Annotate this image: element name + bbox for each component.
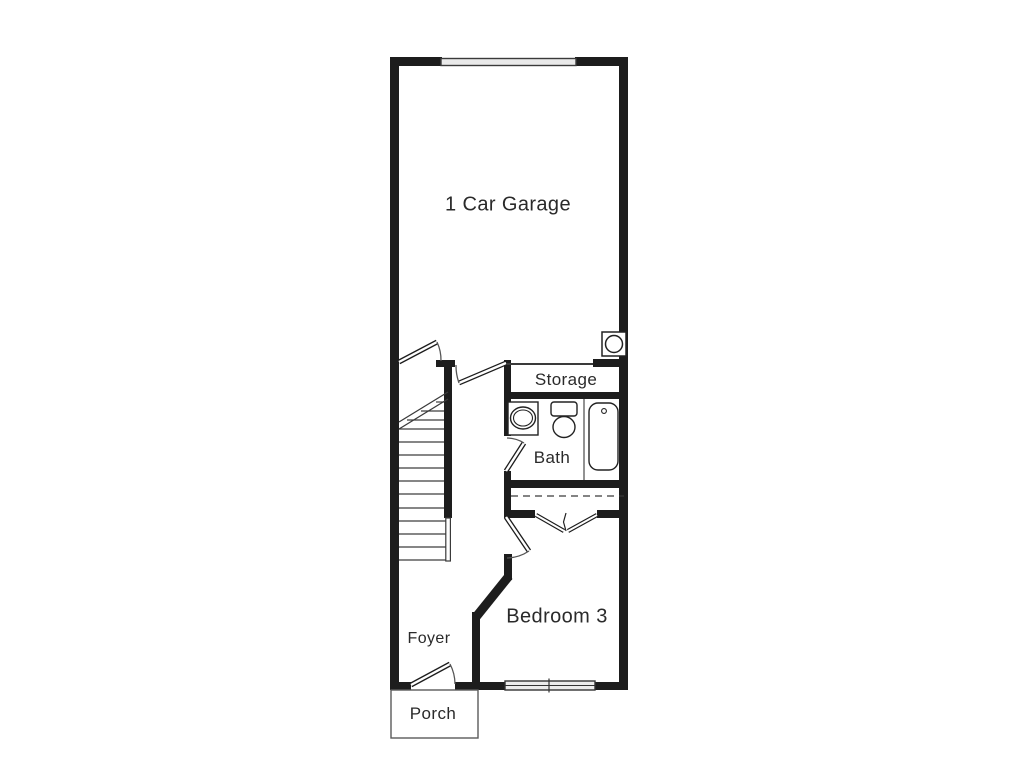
staircase (399, 402, 450, 560)
bathtub (584, 399, 618, 480)
garage-hall-door (456, 363, 506, 383)
bedroom-window (505, 679, 595, 693)
garage-door (441, 59, 576, 66)
floor-plan-drawing (0, 0, 1024, 768)
toilet (551, 402, 577, 438)
room-label-storage: Storage (535, 370, 597, 390)
bifold-closet-doors (536, 513, 597, 531)
room-label-bedroom: Bedroom 3 (506, 606, 607, 629)
sink (508, 402, 538, 435)
bedroom-door (506, 517, 529, 558)
room-label-foyer: Foyer (408, 630, 451, 648)
room-label-bath: Bath (534, 448, 571, 468)
angled-wall (476, 576, 509, 617)
floor-plan: 1 Car Garage Storage Bath Bedroom 3 Foye… (0, 0, 1024, 768)
entry-door (411, 664, 455, 685)
room-label-porch: Porch (410, 704, 456, 724)
water-heater (602, 332, 626, 356)
garage-stair-door (399, 342, 441, 362)
stair-railing (446, 518, 451, 561)
bath-door (506, 438, 524, 471)
room-label-garage: 1 Car Garage (445, 194, 571, 217)
